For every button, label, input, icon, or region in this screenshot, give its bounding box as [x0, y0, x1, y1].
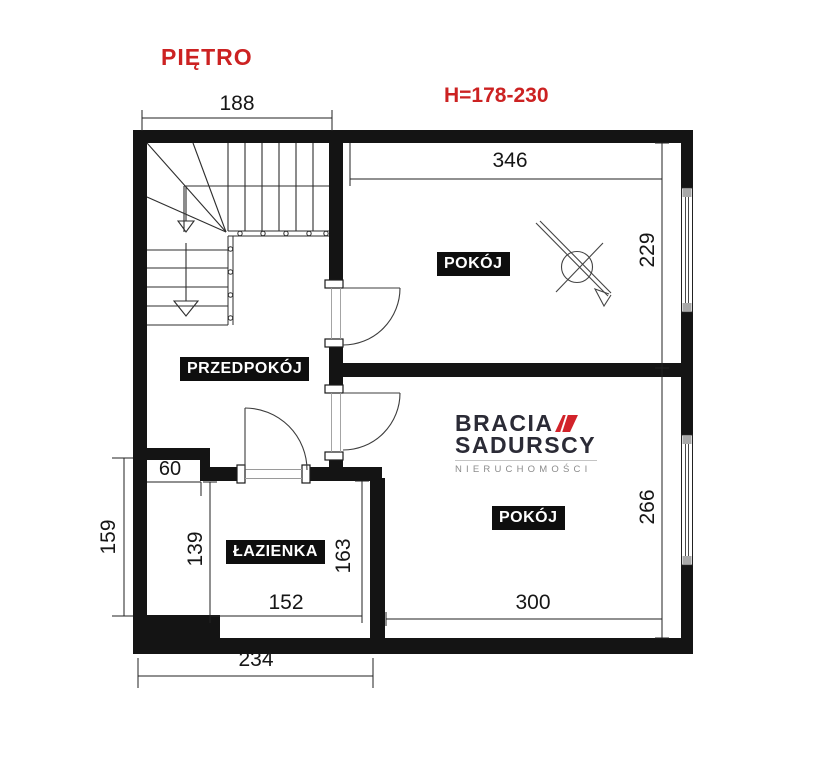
dim-room-bottom-depth: 266 — [636, 467, 660, 547]
door-bottom-room — [343, 393, 400, 450]
brand-divider — [455, 460, 597, 461]
room-label-przedpokoj: PRZEDPOKÓJ — [180, 357, 309, 381]
floor-plan: PIĘTRO H=178-230 188 346 229 266 300 152… — [0, 0, 823, 779]
brand-line1: BRACIA — [455, 412, 553, 434]
dim-stairs-width: 188 — [197, 92, 277, 116]
window-top-room — [682, 188, 693, 312]
dim-left-depth: 159 — [97, 497, 121, 577]
dim-room-top-depth: 229 — [636, 210, 660, 290]
dim-bottom-left-width: 234 — [216, 648, 296, 672]
room-label-pokoj-top: POKÓJ — [437, 252, 510, 276]
door-bathroom — [245, 408, 307, 470]
dimension-lines — [112, 110, 669, 688]
brand-watermark: BRACIA SADURSCY NIERUCHOMOŚCI — [455, 412, 615, 475]
door-thresholds — [245, 288, 341, 479]
brand-flag-icon — [555, 415, 578, 432]
window-bottom-room — [682, 435, 693, 565]
brand-line2: SADURSCY — [455, 434, 615, 456]
dim-bathroom-depth: 163 — [332, 516, 356, 596]
dim-bathroom-width: 152 — [246, 591, 326, 615]
dim-room-bottom-width: 300 — [493, 591, 573, 615]
floorplan-drawing — [0, 0, 823, 779]
chimney-vent-symbol — [536, 221, 611, 306]
dim-niche-depth: 139 — [184, 509, 208, 589]
brand-line3: NIERUCHOMOŚCI — [455, 464, 615, 475]
door-jambs — [237, 280, 343, 483]
door-top-room — [343, 288, 400, 345]
ceiling-height-label: H=178-230 — [444, 84, 549, 108]
room-label-lazienka: ŁAZIENKA — [226, 540, 325, 564]
room-label-pokoj-bottom: POKÓJ — [492, 506, 565, 530]
dim-room-top-width: 346 — [470, 149, 550, 173]
stair-railing — [228, 231, 329, 325]
floor-title: PIĘTRO — [161, 45, 253, 69]
dim-niche-width: 60 — [130, 457, 210, 481]
